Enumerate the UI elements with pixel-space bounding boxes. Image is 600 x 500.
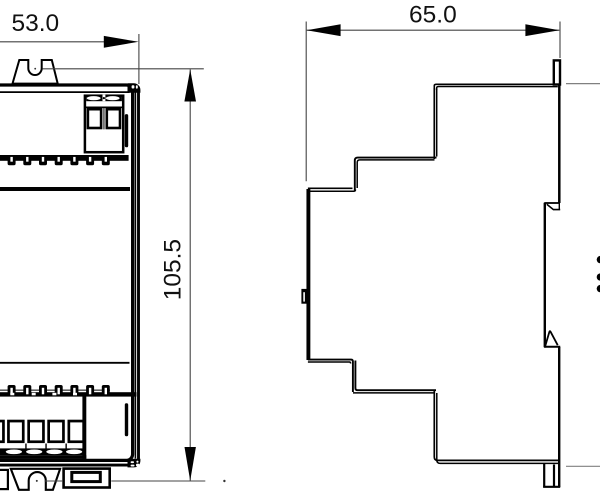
svg-text:65.0: 65.0 — [409, 2, 457, 29]
svg-text:53.0: 53.0 — [11, 10, 59, 37]
svg-text:105.5: 105.5 — [160, 239, 187, 300]
